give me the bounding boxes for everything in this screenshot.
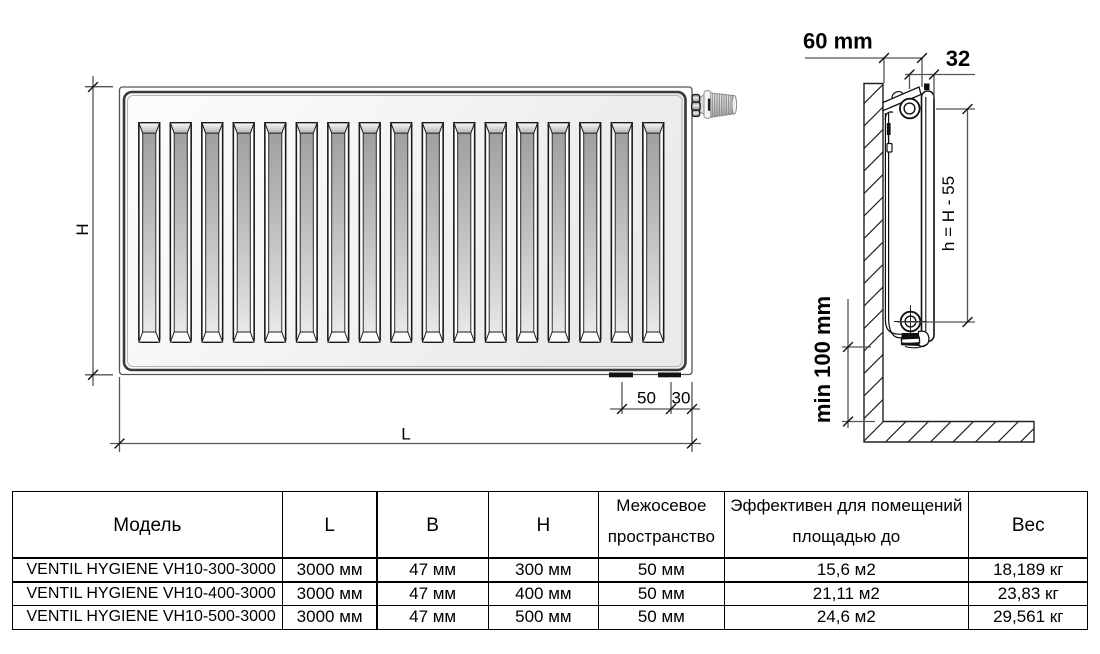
svg-text:H: H (73, 223, 92, 235)
svg-text:h = H - 55: h = H - 55 (939, 176, 958, 251)
svg-text:min 100 mm: min 100 mm (810, 296, 835, 423)
svg-text:50: 50 (637, 389, 656, 408)
svg-text:30: 30 (672, 389, 691, 408)
svg-text:60 mm: 60 mm (803, 29, 873, 54)
svg-text:L: L (401, 425, 410, 444)
svg-text:32: 32 (946, 46, 970, 71)
